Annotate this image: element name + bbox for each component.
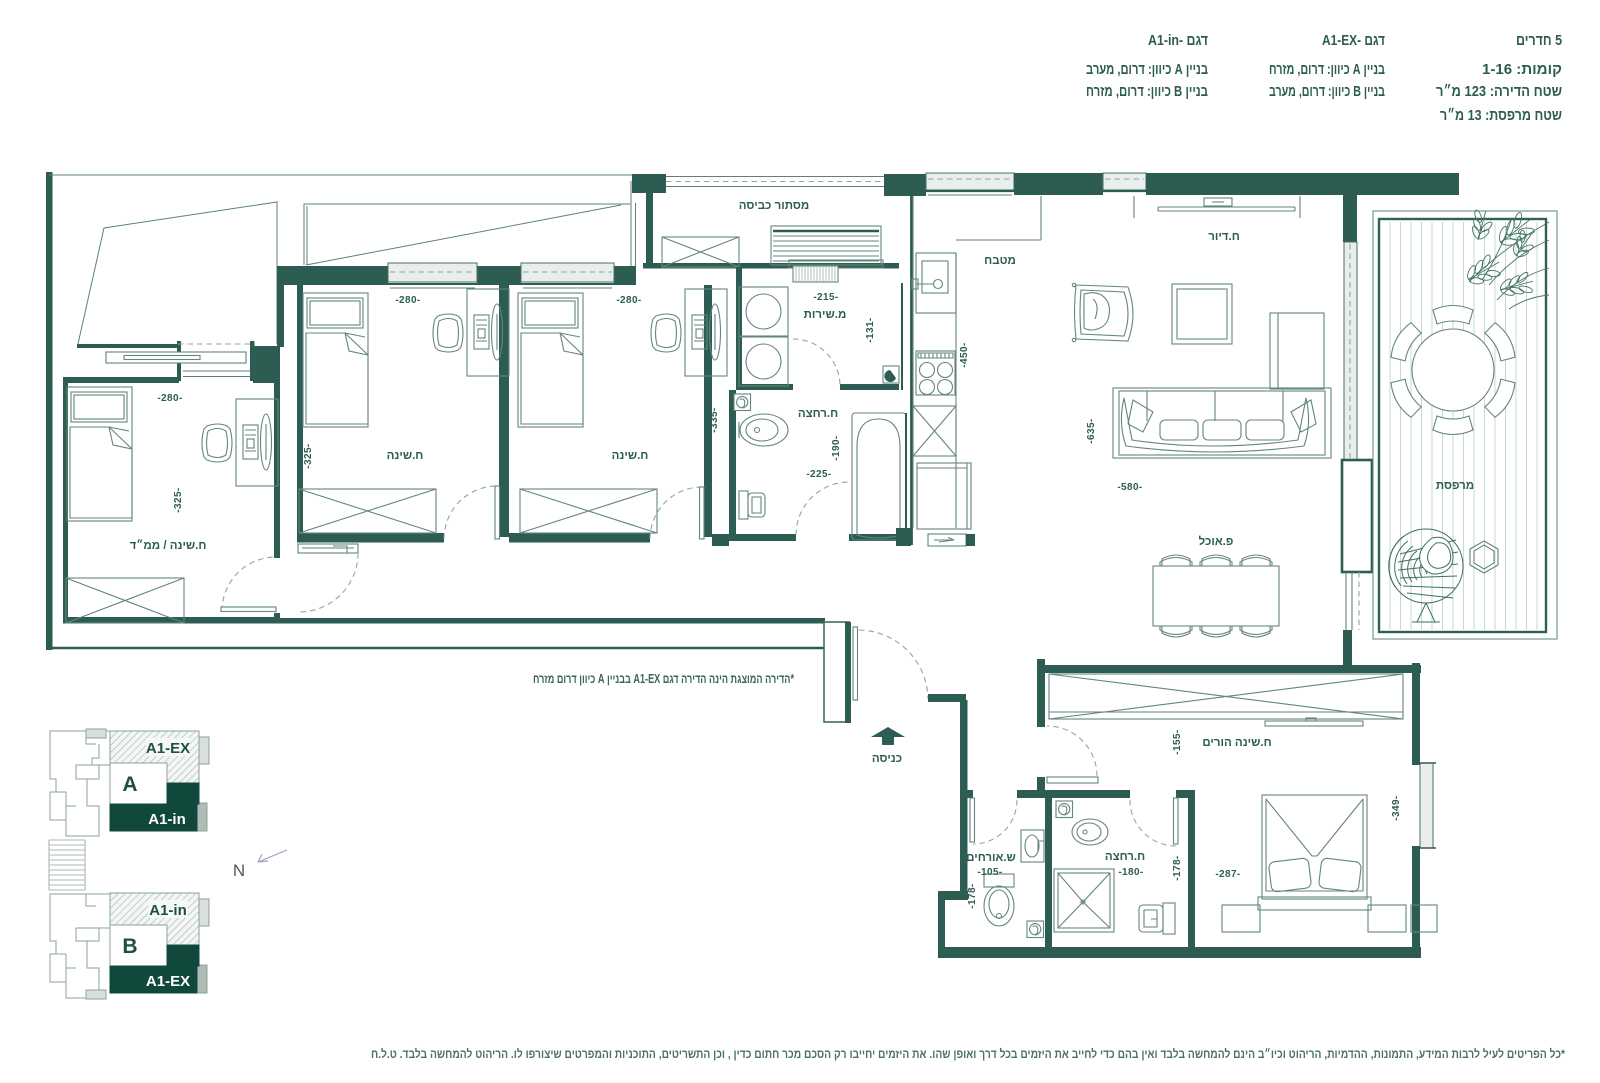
svg-text:-225-: -225- [806,469,831,480]
svg-text:-178-: -178- [967,883,978,908]
svg-text:-325-: -325- [303,443,314,468]
svg-text:-287-: -287- [1215,869,1240,880]
svg-text:ח.רחצה: ח.רחצה [798,408,838,420]
svg-text:A1-in: A1-in [149,902,187,919]
svg-text:-450-: -450- [959,342,970,367]
svg-text:A1-EX: A1-EX [146,973,190,990]
svg-text:-215-: -215- [813,292,838,303]
svg-text:מטבח: מטבח [984,255,1016,267]
svg-text:-349-: -349- [1391,795,1402,820]
svg-text:*הדירה המוצגת הינה הדירה דגם A: *הדירה המוצגת הינה הדירה דגם A1-EX בבניי… [533,672,794,686]
svg-text:-280-: -280- [616,295,641,306]
svg-text:בניין A כיוון: דרום, מערב: בניין A כיוון: דרום, מערב [1086,61,1208,78]
svg-text:-280-: -280- [395,295,420,306]
svg-text:N: N [233,861,245,880]
svg-text:A1-EX: A1-EX [146,740,190,757]
svg-text:בניין B כיוון: דרום, מערב: בניין B כיוון: דרום, מערב [1269,83,1385,100]
svg-text:בניין A כיוון: דרום, מזרח: בניין A כיוון: דרום, מזרח [1269,61,1385,78]
svg-text:-178-: -178- [1172,855,1183,880]
svg-text:-280-: -280- [157,393,182,404]
svg-text:-105-: -105- [977,867,1002,878]
svg-text:ח.דיור: ח.דיור [1208,231,1240,243]
svg-text:שטח מרפסת: 13 מ״ר: שטח מרפסת: 13 מ״ר [1440,107,1562,124]
svg-text:ח.שינה / ממ״ד: ח.שינה / ממ״ד [130,539,207,552]
svg-text:A1-in: A1-in [148,811,186,828]
svg-text:-635-: -635- [1086,418,1097,443]
svg-text:*כל הפריטים לעיל לרבות המידע,: *כל הפריטים לעיל לרבות המידע, התמונות, ה… [371,1047,1565,1061]
svg-text:-190-: -190- [831,435,842,460]
svg-text:-155-: -155- [1172,729,1183,754]
svg-text:ח.שינה: ח.שינה [387,450,424,462]
svg-text:ח.שינה הורים: ח.שינה הורים [1202,737,1271,749]
svg-text:קומות: 1-16: קומות: 1-16 [1482,61,1562,78]
svg-text:-180-: -180- [1118,867,1143,878]
svg-text:מ.שירות: מ.שירות [804,309,847,321]
svg-text:כניסה: כניסה [872,753,902,765]
svg-text:מרפסת: מרפסת [1436,480,1474,492]
svg-text:B: B [122,935,137,958]
svg-text:-131-: -131- [865,317,876,342]
svg-text:5 חדרים: 5 חדרים [1516,32,1562,49]
svg-text:-325-: -325- [173,487,184,512]
svg-text:בניין B כיוון: דרום, מזרח: בניין B כיוון: דרום, מזרח [1086,83,1208,100]
svg-text:פ.אוכל: פ.אוכל [1199,535,1234,548]
svg-text:מסתור כביסה: מסתור כביסה [739,200,809,212]
svg-text:דגם -A1-in: דגם -A1-in [1148,32,1208,49]
svg-text:דגם -A1-EX: דגם -A1-EX [1322,32,1385,49]
svg-text:ש.אורחים: ש.אורחים [966,852,1016,864]
svg-text:-335-: -335- [709,407,720,432]
svg-text:ח.שינה: ח.שינה [612,450,649,462]
svg-text:A: A [122,773,137,796]
svg-text:-580-: -580- [1117,482,1142,493]
svg-text:שטח הדירה: 123 מ״ר: שטח הדירה: 123 מ״ר [1436,83,1562,100]
svg-text:ח.רחצה: ח.רחצה [1105,851,1145,863]
